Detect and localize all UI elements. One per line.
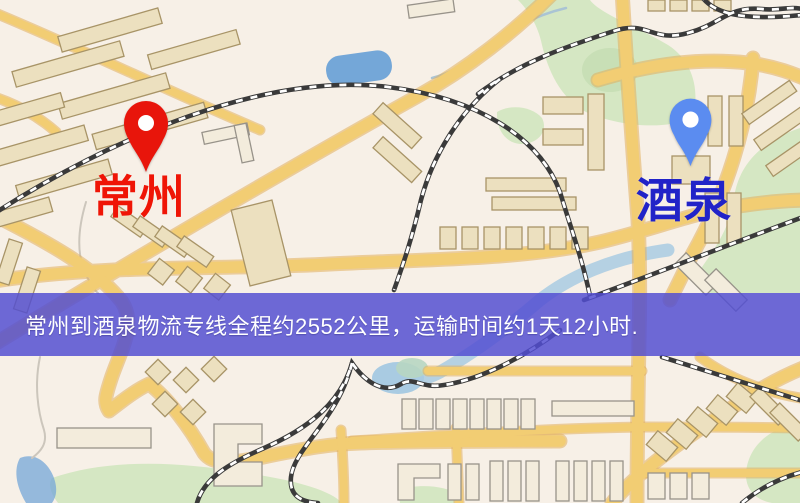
pin-hole (682, 111, 698, 127)
route-info-banner: 常州到酒泉物流专线全程约2552公里，运输时间约1天12小时. (0, 293, 800, 356)
pin-hole (138, 115, 154, 131)
origin-pin-icon[interactable] (116, 94, 176, 174)
map-canvas[interactable]: 常州 酒泉 常州到酒泉物流专线全程约2552公里，运输时间约1天12小时. (0, 0, 800, 503)
destination-city-label: 酒泉 (636, 177, 732, 224)
route-info-text: 常州到酒泉物流专线全程约2552公里，运输时间约1天12小时. (0, 309, 638, 341)
origin-city-label: 常州 (92, 174, 186, 220)
destination-pin-icon[interactable] (662, 92, 719, 168)
map-background (0, 0, 800, 503)
